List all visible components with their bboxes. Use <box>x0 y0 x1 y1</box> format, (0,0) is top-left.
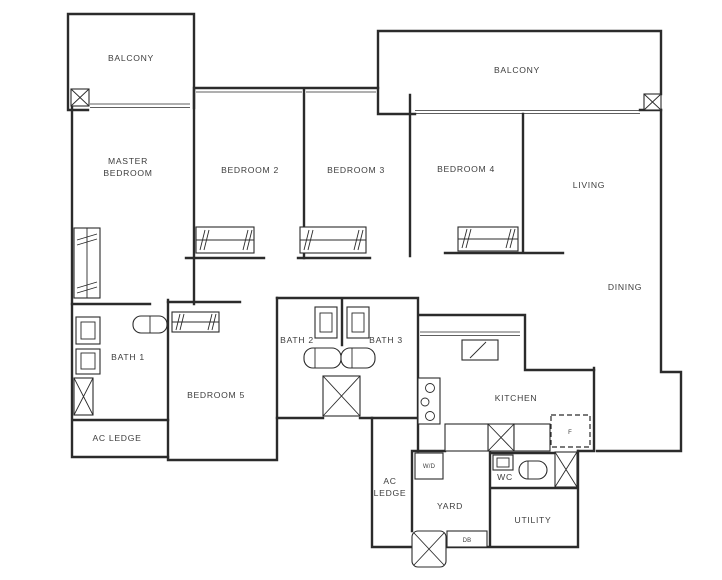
shaft-icon-entrance <box>412 531 446 567</box>
bathtub-icon-bath1 <box>133 316 167 333</box>
wardrobe-bedroom3 <box>300 227 366 253</box>
room-label-ac-ledge-bottom-line2: LEDGE <box>374 488 407 498</box>
vanity-icon-bath1 <box>76 317 100 374</box>
room-label-wc: WC <box>497 472 513 482</box>
room-label-balcony-left: BALCONY <box>108 53 154 63</box>
walls <box>68 14 681 547</box>
room-label-bath-2: BATH 2 <box>280 335 314 345</box>
ac-shaft-icon-balcony-right <box>644 94 661 110</box>
window-master-balcony <box>90 104 190 108</box>
shaft-icon-wc-side <box>555 452 577 487</box>
toilet-icon-bath3 <box>347 307 369 338</box>
window-living-balcony <box>415 111 640 114</box>
floor-plan: BALCONY BALCONY MASTER BEDROOM BEDROOM 2… <box>0 0 722 580</box>
room-label-bedroom-2: BEDROOM 2 <box>221 165 279 175</box>
ac-shaft-icon-bath1 <box>74 378 93 415</box>
counter-kitchen-left <box>445 424 488 451</box>
hob-icon-kitchen <box>418 378 440 424</box>
label-db: DB <box>463 538 472 544</box>
shower-icon-bath2-3 <box>323 376 360 416</box>
room-label-balcony-right: BALCONY <box>494 65 540 75</box>
room-label-ac-ledge-left: AC LEDGE <box>92 433 141 443</box>
toilet-icon-bath2 <box>315 307 337 338</box>
ac-shaft-icon-balcony-left <box>71 89 89 106</box>
room-label-utility: UTILITY <box>515 515 552 525</box>
wardrobe-bedroom2 <box>196 227 254 253</box>
room-label-bath-1: BATH 1 <box>111 352 145 362</box>
room-label-bedroom-3: BEDROOM 3 <box>327 165 385 175</box>
wardrobe-bedroom5 <box>172 312 219 332</box>
floor-plan-drawing: BALCONY BALCONY MASTER BEDROOM BEDROOM 2… <box>0 0 722 580</box>
room-label-yard: YARD <box>437 501 463 511</box>
room-label-living: LIVING <box>573 180 605 190</box>
wardrobe-bedroom4 <box>458 227 518 251</box>
room-label-ac-ledge-bottom-line1: AC <box>383 476 396 486</box>
window-kitchen <box>420 332 520 336</box>
room-label-kitchen: KITCHEN <box>495 393 538 403</box>
room-label-master-bedroom-line2: BEDROOM <box>103 168 152 178</box>
room-label-dining: DINING <box>608 282 642 292</box>
basin-icon-bath3 <box>341 348 375 368</box>
toilet-icon-wc <box>519 461 547 479</box>
sink-icon-kitchen <box>462 340 498 360</box>
wardrobe-master <box>74 228 100 298</box>
basin-icon-bath2 <box>304 348 341 368</box>
room-label-bedroom-4: BEDROOM 4 <box>437 164 495 174</box>
bath-fixtures <box>76 307 547 479</box>
room-label-bath-3: BATH 3 <box>369 335 403 345</box>
label-washer-dryer: W/D <box>423 464 436 470</box>
room-label-master-bedroom-line1: MASTER <box>108 156 148 166</box>
label-fridge: F <box>568 430 572 436</box>
shaft-icon-kitchen <box>488 424 514 451</box>
room-label-bedroom-5: BEDROOM 5 <box>187 390 245 400</box>
counter-kitchen-right <box>514 424 550 451</box>
basin-icon-wc <box>493 455 513 470</box>
